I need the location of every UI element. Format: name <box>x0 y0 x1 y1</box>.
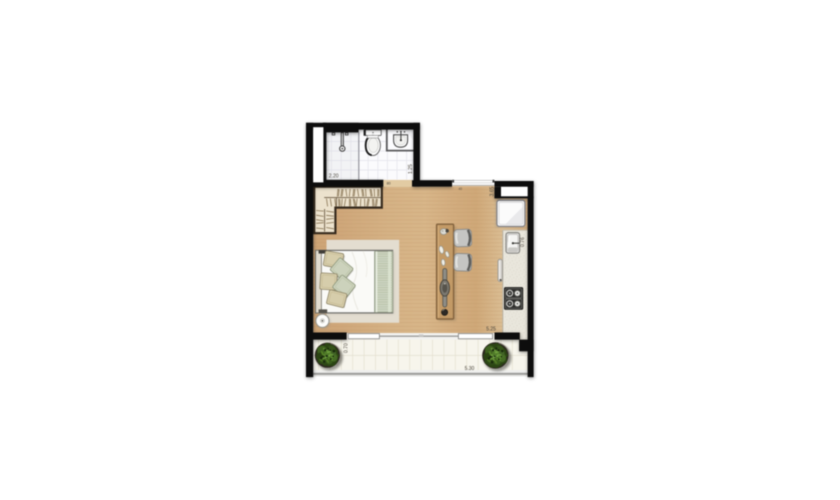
svg-text:1.25: 1.25 <box>408 164 414 174</box>
svg-text:40: 40 <box>458 187 462 191</box>
svg-text:0.70: 0.70 <box>343 343 349 353</box>
svg-text:0.76: 0.76 <box>520 237 526 247</box>
svg-text:3.65: 3.65 <box>489 186 495 196</box>
svg-text:2.20: 2.20 <box>329 173 339 179</box>
svg-text:80: 80 <box>387 182 391 186</box>
svg-text:5.30: 5.30 <box>465 366 475 372</box>
svg-text:5.25: 5.25 <box>486 327 496 333</box>
